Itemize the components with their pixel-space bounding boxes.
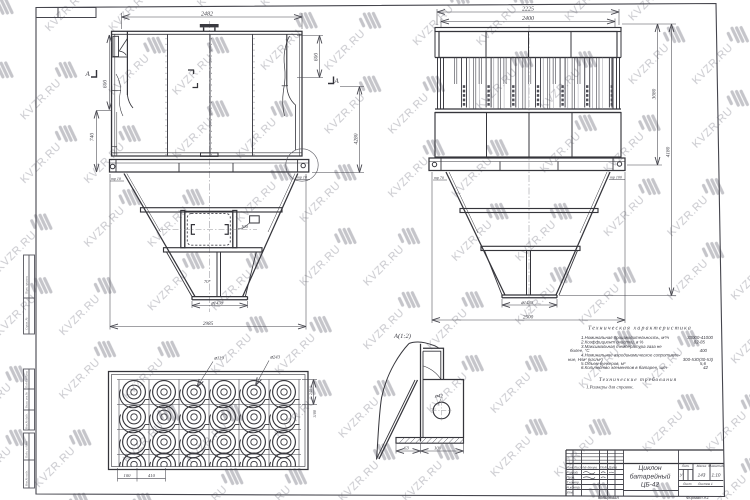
svg-text:Инв.№ дубл.: Инв.№ дубл. (25, 413, 29, 430)
svg-text:Масштаб: Масштаб (708, 464, 724, 468)
svg-text:600: 600 (103, 80, 109, 89)
svg-text:1100: 1100 (312, 410, 317, 418)
svg-text:Т.контр.: Т.контр. (567, 481, 580, 485)
svg-text:⌀1430: ⌀1430 (521, 300, 534, 305)
svg-text:100: 100 (241, 224, 249, 229)
svg-text:600: 600 (314, 53, 320, 62)
svg-text:Инв.№ подл.: Инв.№ подл. (25, 470, 29, 487)
svg-text:ЦБ-42: ЦБ-42 (641, 482, 660, 489)
svg-text:Лист: Лист (573, 465, 583, 469)
svg-text:410: 410 (148, 473, 156, 478)
svg-text:Н.контр.: Н.контр. (567, 486, 581, 490)
svg-text:82-85: 82-85 (694, 340, 706, 345)
svg-text:Разраб.: Разраб. (567, 471, 579, 475)
svg-text:4180: 4180 (666, 146, 672, 157)
svg-text:143: 143 (698, 473, 706, 478)
svg-text:тр 100: тр 100 (610, 175, 622, 180)
svg-text:Подп. и дата: Подп. и дата (25, 370, 29, 389)
svg-text:⌀119: ⌀119 (214, 356, 224, 362)
svg-text:70°: 70° (204, 279, 211, 284)
svg-text:2400: 2400 (522, 16, 534, 22)
svg-text:740: 740 (90, 133, 96, 142)
svg-text:2225: 2225 (522, 7, 534, 13)
svg-text:Копировал: Копировал (598, 495, 619, 500)
svg-text:Циклон: Циклон (638, 465, 662, 472)
svg-text:Лист: Лист (682, 482, 692, 486)
svg-text:100: 100 (124, 473, 132, 478)
svg-text:Подп. и дата: Подп. и дата (25, 440, 29, 459)
svg-text:батарейный: батарейный (630, 473, 671, 481)
svg-text:Формат А1: Формат А1 (686, 495, 709, 500)
svg-text:4280: 4280 (354, 133, 360, 144)
svg-text:Изм.: Изм. (567, 465, 574, 469)
svg-text:⌀1430: ⌀1430 (211, 300, 224, 305)
svg-text:Утв.: Утв. (567, 490, 575, 494)
svg-text:Перв. примен.: Перв. примен. (25, 275, 29, 295)
svg-text:Дата: Дата (608, 465, 618, 469)
svg-text:A: A (334, 77, 340, 85)
svg-text:100: 100 (434, 446, 442, 452)
svg-text:Листов 1: Листов 1 (697, 482, 713, 486)
svg-text:2500: 2500 (523, 314, 534, 320)
svg-text:1.Размеры для справок.: 1.Размеры для справок. (586, 385, 634, 391)
svg-text:Лит.: Лит. (681, 464, 690, 468)
svg-text:240: 240 (308, 389, 313, 395)
svg-text:3.Максимальная температура газ: 3.Максимальная температура газа не (581, 344, 662, 349)
svg-text:42: 42 (703, 365, 708, 370)
svg-text:Техническая характеристика: Техническая характеристика (588, 326, 692, 332)
svg-text:Пров.: Пров. (567, 476, 576, 480)
svg-text:Масса: Масса (697, 464, 707, 468)
svg-text:тр 10: тр 10 (111, 176, 121, 181)
svg-text:300-530(30-53): 300-530(30-53) (683, 357, 714, 362)
svg-text:400: 400 (700, 348, 708, 353)
svg-text:А(1:2): А(1:2) (393, 333, 411, 340)
svg-text:тр 10: тр 10 (297, 175, 307, 180)
svg-text:63: 63 (404, 446, 409, 452)
svg-text:1:10: 1:10 (712, 473, 721, 478)
svg-text:№ докум.: № докум. (583, 465, 598, 469)
svg-text:Взам. инв.№: Взам. инв.№ (25, 392, 29, 408)
svg-text:2482: 2482 (201, 12, 213, 18)
svg-text:Справ. №: Справ. № (25, 317, 29, 330)
svg-text:2985: 2985 (203, 321, 214, 327)
svg-text:3080: 3080 (652, 88, 658, 99)
svg-text:тр 70: тр 70 (434, 175, 444, 180)
svg-text:Технические требования: Технические требования (599, 377, 677, 383)
svg-text:A: A (85, 70, 91, 78)
svg-text:⌀42: ⌀42 (435, 394, 444, 400)
svg-text:⌀243: ⌀243 (270, 355, 281, 361)
svg-text:6.Количество элементов в батар: 6.Количество элементов в батарее, шт (581, 365, 667, 370)
